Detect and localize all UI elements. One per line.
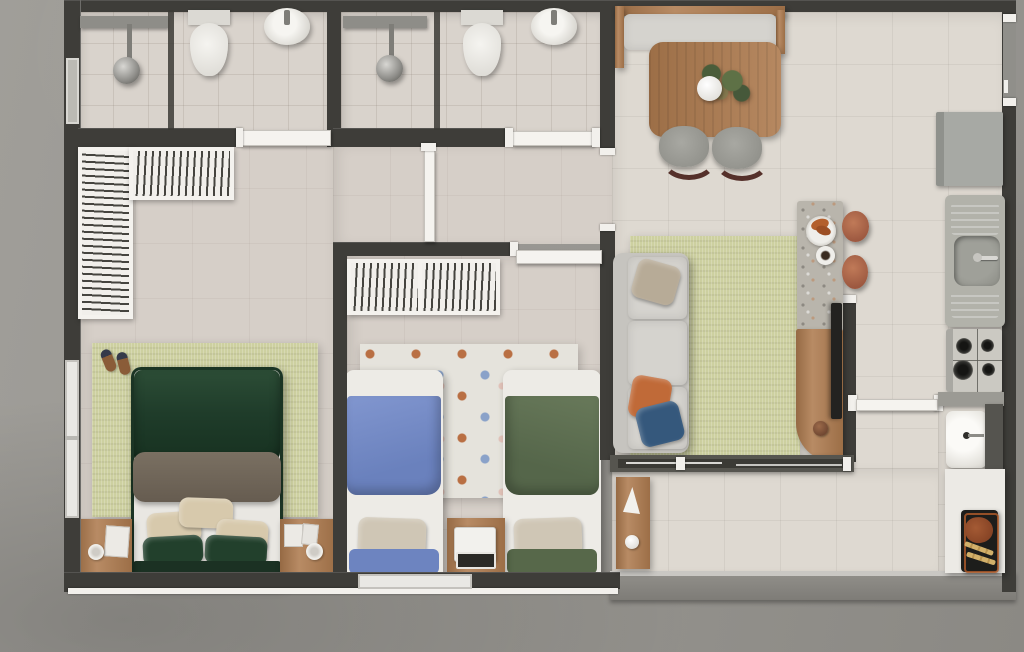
refrigerator — [936, 112, 1003, 186]
hall-living-opening-jamb-top — [600, 148, 615, 155]
balcony-floor — [612, 468, 942, 574]
laundry-tank-faucet-stem — [968, 434, 984, 437]
shower-head-1-icon — [113, 57, 140, 84]
bathroom-1-door-open — [241, 130, 331, 146]
dining-chair-1-backrest — [661, 138, 717, 180]
single-bed-green-foot-fold — [507, 549, 597, 574]
shower-arm-1 — [127, 24, 132, 61]
drainboard-bottom — [951, 290, 999, 318]
bedroom-2-window — [358, 574, 472, 589]
burner-1 — [956, 338, 972, 354]
wall-bathroom1-bottom — [78, 128, 240, 147]
master-closet-vertical — [78, 147, 133, 319]
slider-handle-right — [843, 457, 851, 471]
burner-4 — [982, 363, 995, 376]
balcony-shelf-round-decor — [625, 535, 639, 549]
outer-trim-bottom — [68, 588, 618, 594]
coffee-cup — [816, 246, 835, 265]
wall-bathroom-divider — [327, 0, 341, 147]
wall-master-bedroom2-divider — [333, 242, 347, 572]
single-bed-green-blanket — [505, 396, 599, 495]
drainboard-top — [951, 203, 999, 235]
shower-arm-2 — [389, 24, 394, 59]
entrance-door-jamb-top — [1003, 14, 1016, 22]
double-bed-folded-duvet — [133, 452, 281, 502]
bathroom-2-door-jamb-left — [505, 128, 513, 147]
washbasin-2-faucet-icon — [551, 10, 557, 25]
stool-1 — [842, 211, 869, 242]
dining-chair-2-backrest — [714, 139, 770, 181]
shower-head-2-icon — [376, 55, 403, 82]
nightstand-left-cup — [88, 544, 104, 560]
wall-bottom-bedrooms — [64, 572, 620, 589]
bedroom-2-wardrobe-divider — [418, 261, 422, 313]
master-closet-horizontal — [129, 147, 234, 200]
wall-bedroom2-top — [333, 242, 510, 256]
shower-glass-1 — [168, 10, 174, 130]
hall-living-opening-jamb-bottom — [600, 224, 615, 231]
bathroom-2-door-jamb-right — [592, 128, 600, 147]
nightstand-right-cup — [306, 543, 323, 560]
single-bed-blue-foot-fold — [349, 549, 439, 574]
wall-bathroom2-right — [600, 0, 615, 150]
hallway-floor — [333, 140, 615, 244]
bedroom-2-door-open — [516, 250, 602, 264]
sideboard-decor-knob — [813, 421, 828, 436]
service-panel — [985, 404, 1003, 470]
laptop-keyboard — [456, 552, 496, 569]
shower-rail-2 — [343, 16, 427, 28]
floor-plan — [0, 0, 1024, 652]
shower-glass-2 — [434, 10, 440, 130]
tv — [831, 303, 842, 419]
bedroom-2-wardrobe — [347, 259, 500, 315]
burner-2 — [981, 339, 994, 352]
parapet — [610, 571, 1016, 600]
shower-rail-1 — [80, 16, 168, 28]
bathroom-1-window — [66, 58, 79, 124]
laundry-tank — [946, 411, 987, 468]
bathroom-1-door-jamb — [236, 128, 243, 147]
wall-kitchen-divider — [843, 302, 856, 462]
master-bedroom-window-mullion — [65, 436, 79, 440]
plant-pot — [697, 76, 722, 101]
service-door-open — [856, 399, 938, 411]
single-bed-blue-blanket — [347, 396, 441, 495]
dining-bench-frame-left — [615, 6, 624, 68]
master-bedroom-door-open — [424, 150, 435, 242]
bathroom-2-door-open — [512, 131, 594, 146]
kitchen-divider-jamb — [843, 295, 856, 303]
slider-track-1 — [626, 462, 722, 464]
slider-track-2 — [736, 464, 842, 466]
stool-2 — [842, 255, 868, 289]
kitchen-faucet-head — [973, 253, 982, 262]
master-bedroom-door-hinge — [421, 143, 436, 151]
slider-handle-left — [676, 457, 685, 470]
entrance-door-jamb-bottom — [1003, 98, 1016, 106]
nightstand-left-book — [104, 525, 130, 558]
washbasin-1-faucet-icon — [284, 10, 290, 25]
burner-3 — [953, 360, 973, 380]
entrance-door-handle — [1004, 80, 1008, 93]
